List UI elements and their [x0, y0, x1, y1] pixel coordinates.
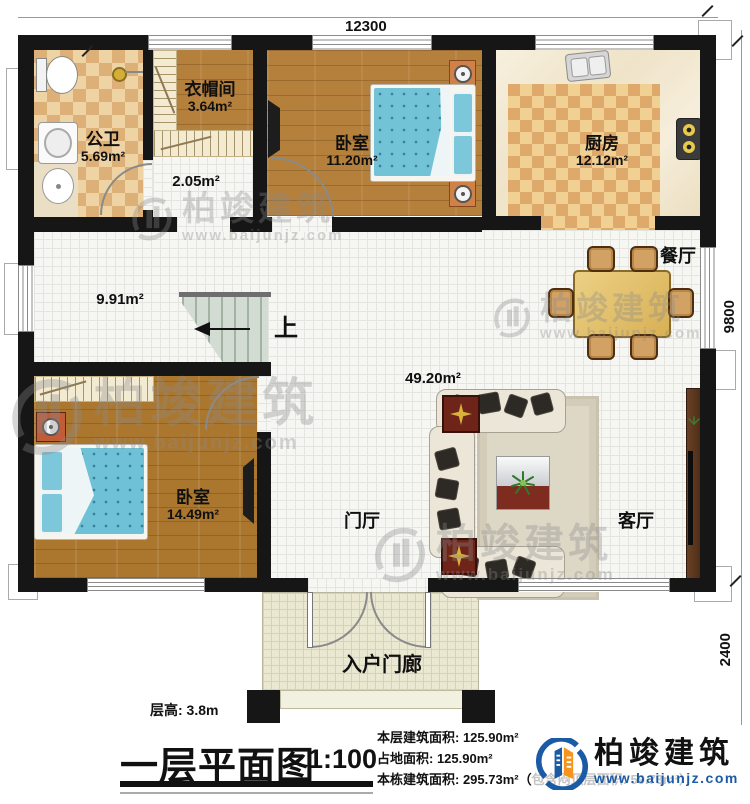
dining-table — [573, 270, 671, 338]
cloakroom-wardrobe — [153, 50, 177, 132]
nightstand — [36, 412, 66, 442]
room-area: 9.91m² — [96, 292, 144, 309]
room-label-corridor: 9.91m² — [96, 292, 144, 309]
room-label-bathroom: 公卫 5.69m² — [81, 130, 125, 165]
window — [700, 247, 716, 349]
title-underline-thick — [120, 781, 373, 787]
floor-height-label: 层高: 3.8m — [150, 700, 218, 720]
window — [535, 35, 654, 50]
tv-icon — [688, 451, 693, 545]
coffee-table — [496, 456, 550, 510]
kitchen-opening-floor — [541, 216, 655, 230]
room-name: 餐厅 — [660, 246, 696, 266]
wall — [257, 362, 271, 376]
room-label-open-area: 49.20m² — [405, 371, 461, 388]
sink-basin — [570, 57, 589, 78]
plant-icon — [687, 415, 701, 431]
room-name: 衣帽间 — [185, 80, 236, 99]
washer-drum — [44, 128, 72, 158]
wall — [18, 362, 270, 376]
stairs-up-text: 上 — [274, 316, 298, 343]
stairs-arrow-line — [208, 328, 250, 330]
porch-column — [247, 690, 280, 723]
entry-door-leaf — [307, 592, 313, 648]
room-label-kitchen: 厨房 12.12m² — [576, 134, 628, 169]
wall — [18, 578, 87, 592]
room-label-porch: 入户门廊 — [342, 654, 422, 676]
window — [312, 35, 432, 50]
room-label-cloakroom: 衣帽间 3.64m² — [185, 80, 236, 115]
wall — [257, 432, 271, 578]
brand-name: 柏竣建筑 — [594, 739, 739, 769]
title-underline-thin — [120, 792, 373, 794]
plan-scale: 1:100 — [308, 744, 377, 775]
bedroom2-tv — [243, 458, 254, 524]
stairs-arrow-head — [194, 322, 210, 336]
wall — [18, 50, 34, 265]
stove-icon — [676, 118, 702, 160]
wall — [253, 35, 267, 217]
dimension-top: 12300 — [340, 18, 392, 35]
room-label-bedroom1: 卧室 11.20m² — [326, 134, 377, 169]
lamp-icon — [42, 418, 60, 436]
room-label-foyer: 门厅 — [344, 511, 380, 531]
burner — [683, 124, 695, 136]
bedroom2-wardrobe — [34, 376, 154, 402]
room-name: 厨房 — [576, 134, 628, 153]
end-table — [442, 395, 480, 433]
pillow — [40, 450, 64, 492]
valve-stem — [125, 71, 143, 73]
porch-column — [462, 690, 495, 723]
lamp-icon — [454, 65, 472, 83]
doorway-floor — [177, 217, 230, 232]
wall — [203, 578, 308, 592]
end-table — [441, 538, 477, 575]
wall — [428, 578, 518, 592]
wall — [143, 50, 153, 160]
nightstand — [449, 180, 476, 207]
window — [18, 265, 34, 332]
wall — [230, 35, 312, 50]
wall — [482, 35, 496, 216]
kitchen-sink — [565, 50, 612, 82]
nightstand — [449, 60, 476, 87]
wall — [668, 578, 716, 592]
bedroom1-tv — [268, 100, 280, 158]
basin-icon — [42, 168, 74, 204]
wall — [267, 217, 272, 232]
stairs-up-label: 上 — [274, 316, 298, 343]
room-name: 卧室 — [326, 134, 377, 153]
sofa-cushion — [436, 507, 461, 531]
doorway-floor — [257, 376, 271, 432]
entry-door-leaf — [425, 592, 431, 648]
closet-rail — [161, 136, 212, 151]
room-area: 3.64m² — [185, 99, 236, 115]
doorway-floor — [272, 217, 332, 232]
dining-chair — [630, 246, 658, 272]
brand-logo-icon — [536, 738, 588, 790]
burner — [683, 141, 695, 153]
stairs-cap — [179, 292, 271, 297]
room-area: 12.12m² — [576, 153, 628, 169]
lamp-icon — [454, 185, 472, 203]
plant-icon — [509, 469, 537, 497]
porch-step — [280, 690, 464, 709]
wall — [700, 50, 716, 247]
washer-icon — [38, 122, 78, 164]
window — [87, 578, 205, 592]
room-name: 公卫 — [81, 130, 125, 149]
pillow — [40, 492, 64, 534]
toilet-icon — [46, 56, 78, 94]
basin-drain — [56, 184, 61, 189]
sofa-cushion — [434, 477, 459, 501]
window — [518, 578, 670, 592]
room-area: 5.69m² — [81, 149, 125, 165]
wall — [482, 216, 541, 230]
dining-chair — [630, 334, 658, 360]
wall — [18, 35, 148, 50]
room-area: 2.05m² — [172, 174, 220, 191]
compass-star — [448, 545, 470, 567]
dimension-tick — [701, 5, 713, 17]
brand-logo: 柏竣建筑 www.baijunjz.com — [532, 736, 743, 792]
wall — [652, 35, 716, 50]
wall — [700, 347, 716, 578]
wall — [332, 217, 482, 232]
dining-chair — [548, 288, 574, 318]
sofa-cushion — [476, 391, 501, 415]
window — [148, 35, 232, 50]
room-area: 49.20m² — [405, 371, 461, 388]
doorway-floor — [308, 578, 428, 592]
dining-chair — [668, 288, 694, 318]
room-area: 14.49m² — [167, 507, 219, 523]
room-label-hallway: 2.05m² — [172, 174, 220, 191]
wardrobe-rail — [155, 66, 176, 113]
wall — [34, 217, 177, 232]
compass-star — [450, 403, 472, 425]
room-name: 入户门廊 — [342, 654, 422, 676]
dimension-right-upper: 9800 — [721, 295, 738, 338]
closet-hatch — [153, 130, 255, 157]
dining-chair — [587, 246, 615, 272]
porch-floor — [262, 592, 479, 692]
floor-plan: 12300 9800 2400 — [0, 0, 750, 804]
dining-chair — [587, 334, 615, 360]
room-area: 11.20m² — [326, 153, 377, 169]
pillow — [452, 92, 474, 134]
room-label-bedroom2: 卧室 14.49m² — [167, 488, 219, 523]
room-name: 卧室 — [167, 488, 219, 507]
wall — [230, 217, 267, 232]
dimension-right-lower: 2400 — [717, 628, 734, 671]
wardrobe-rail — [40, 380, 87, 395]
valve-icon — [112, 67, 127, 82]
wall — [655, 216, 700, 230]
dimension-line-right — [741, 30, 742, 725]
room-label-living: 客厅 — [618, 511, 654, 531]
sink-basin — [588, 55, 607, 76]
room-label-dining: 餐厅 — [660, 246, 696, 266]
room-name: 门厅 — [344, 511, 380, 531]
pillow — [452, 134, 474, 176]
brand-url: www.baijunjz.com — [594, 769, 739, 789]
room-name: 客厅 — [618, 511, 654, 531]
